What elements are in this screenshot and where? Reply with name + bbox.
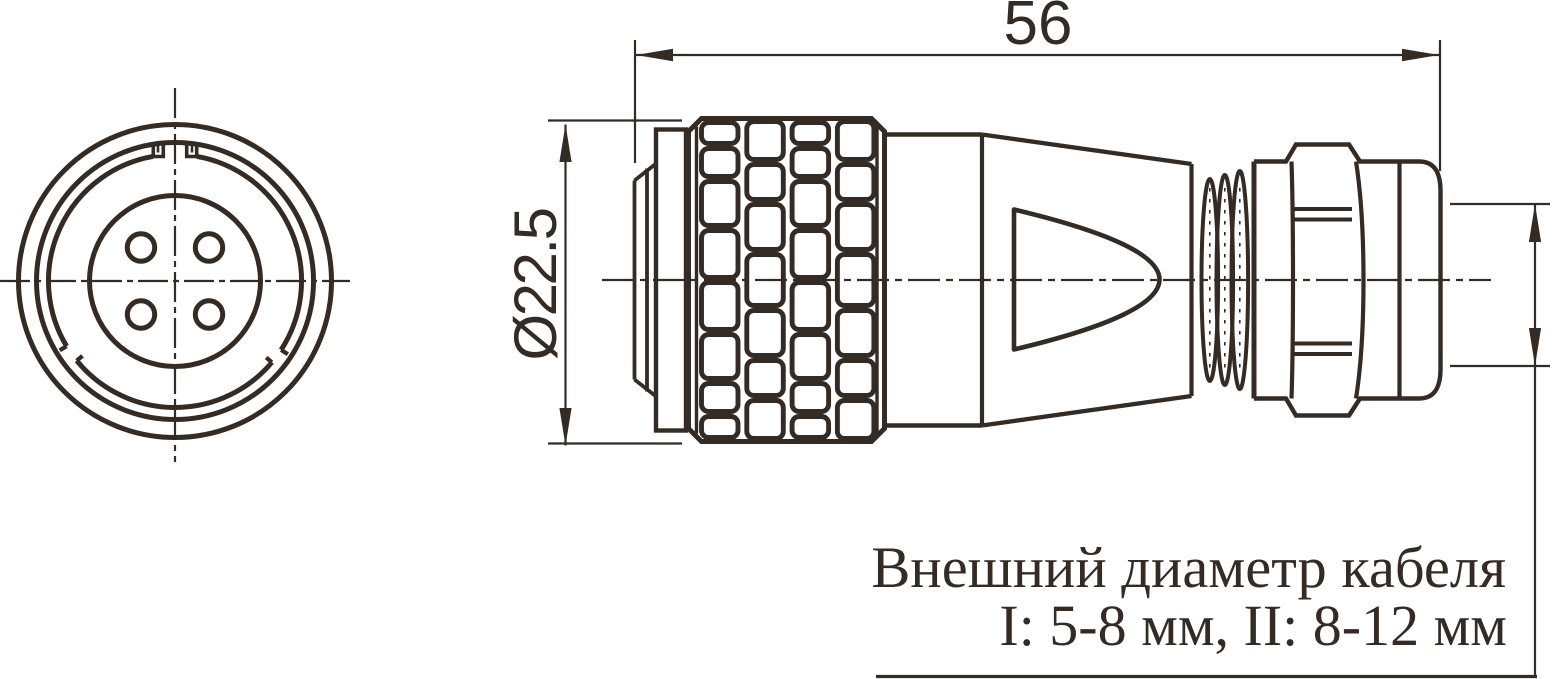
svg-text:56: 56 <box>1004 0 1073 58</box>
svg-text:I: 5-8 мм, II: 8-12 мм: I: 5-8 мм, II: 8-12 мм <box>999 593 1507 658</box>
svg-text:Ø22.5: Ø22.5 <box>502 209 569 360</box>
svg-text:Внешний диаметр кабеля: Внешний диаметр кабеля <box>871 535 1506 600</box>
